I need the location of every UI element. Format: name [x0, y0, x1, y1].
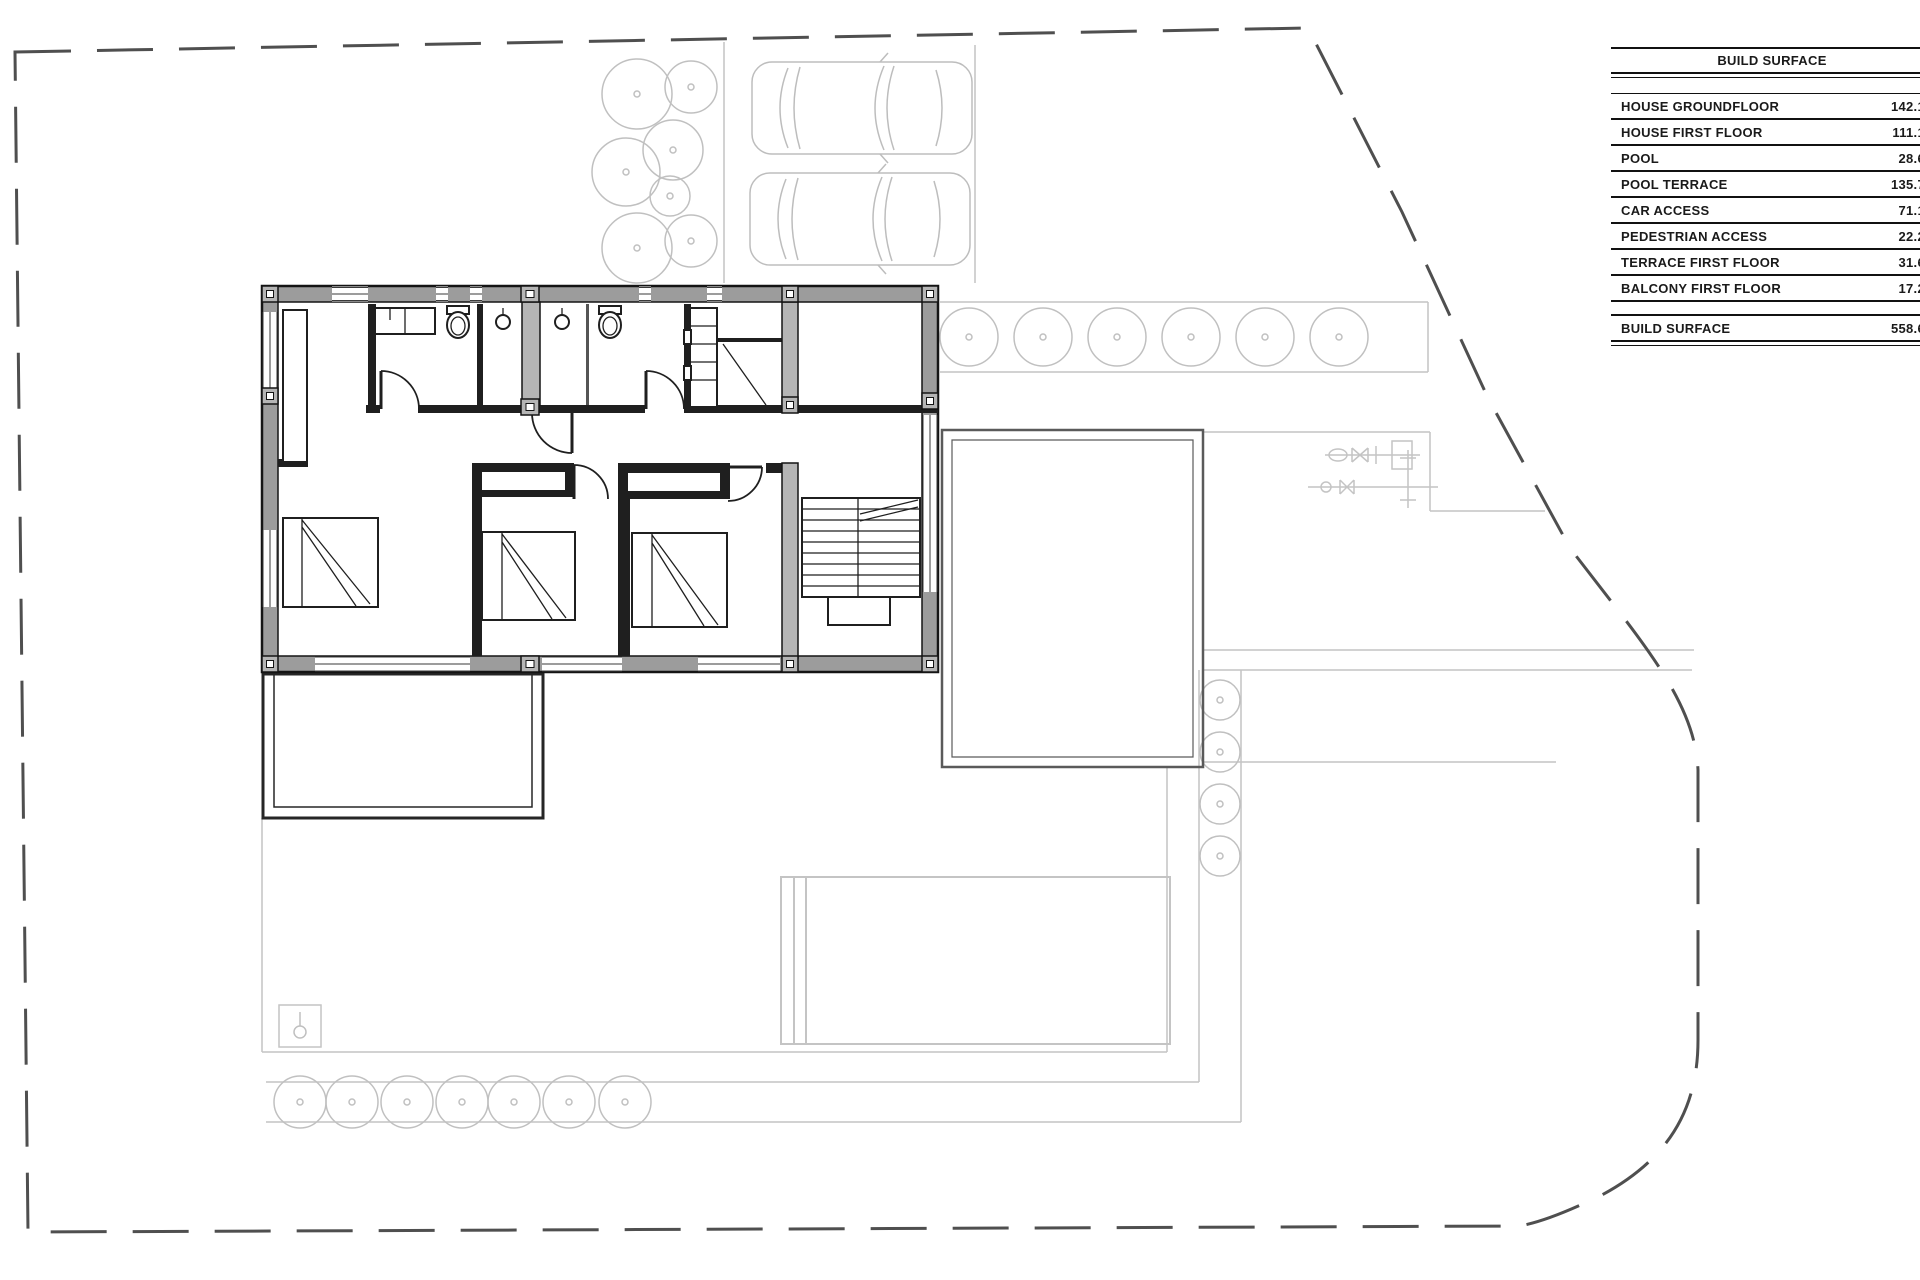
pool-terrace-outline	[262, 767, 1167, 1052]
table-rule	[1611, 345, 1920, 346]
bed	[482, 532, 575, 620]
bed	[283, 518, 378, 607]
table-row: HOUSE GROUNDFLOOR 142.1	[1611, 94, 1920, 120]
car-icon	[750, 164, 970, 274]
tree-band-south-lines	[266, 1082, 1241, 1122]
car-icon	[752, 53, 972, 163]
utility-enclosure-lines	[1203, 432, 1545, 511]
house-floor-plan	[262, 286, 938, 672]
pool-outline	[781, 877, 1170, 1044]
site-plan-sheet: { "table": { "title": "BUILD SURFACE", "…	[0, 0, 1920, 1280]
row-value: 17.2	[1898, 281, 1920, 296]
pool-steps	[794, 877, 806, 1044]
bed	[632, 533, 727, 627]
row-label: PEDESTRIAN ACCESS	[1621, 229, 1767, 244]
table-row: HOUSE FIRST FLOOR 111.1	[1611, 120, 1920, 146]
row-label: BALCONY FIRST FLOOR	[1621, 281, 1781, 296]
table-row: CAR ACCESS 71.1	[1611, 198, 1920, 224]
row-value: 135.7	[1891, 177, 1920, 192]
wardrobe	[283, 310, 307, 462]
deck-east	[942, 430, 1203, 767]
row-value: 71.1	[1898, 203, 1920, 218]
row-value: 28.6	[1898, 151, 1920, 166]
planter-sprout-icon	[294, 1012, 306, 1038]
tree-strip-right	[1200, 680, 1240, 876]
table-row: PEDESTRIAN ACCESS 22.2	[1611, 224, 1920, 250]
table-row: POOL TERRACE 135.7	[1611, 172, 1920, 198]
table-total-row: BUILD SURFACE 558.6	[1611, 314, 1920, 342]
build-surface-table: BUILD SURFACE HOUSE GROUNDFLOOR 142.1 HO…	[1611, 47, 1920, 346]
row-value: 31.6	[1898, 255, 1920, 270]
table-title: BUILD SURFACE	[1611, 49, 1920, 72]
row-label: POOL TERRACE	[1621, 177, 1728, 192]
bedroom2-closet	[481, 471, 566, 491]
bedroom3-closet	[627, 472, 721, 492]
row-value: 111.1	[1892, 125, 1920, 140]
table-row: BALCONY FIRST FLOOR 17.2	[1611, 276, 1920, 302]
row-label: HOUSE FIRST FLOOR	[1621, 125, 1763, 140]
total-value: 558.6	[1891, 321, 1920, 336]
terrain-lines-east	[1203, 650, 1694, 762]
row-value: 142.1	[1891, 99, 1920, 114]
tree-row-south	[274, 1076, 651, 1128]
tree-row-east	[940, 308, 1368, 366]
table-rule	[1611, 72, 1920, 74]
toilet-icon	[447, 306, 469, 338]
parking-cars	[750, 53, 972, 274]
row-label: TERRACE FIRST FLOOR	[1621, 255, 1780, 270]
total-label: BUILD SURFACE	[1621, 321, 1730, 336]
terrace-south-west	[263, 674, 543, 818]
row-label: POOL	[1621, 151, 1659, 166]
row-label: HOUSE GROUNDFLOOR	[1621, 99, 1779, 114]
table-row: TERRACE FIRST FLOOR 31.6	[1611, 250, 1920, 276]
toilet-icon	[599, 306, 621, 338]
tree-cluster	[592, 59, 717, 283]
utility-valves-icon	[1308, 441, 1438, 508]
double-sink-counter-icon	[375, 308, 435, 334]
row-value: 22.2	[1898, 229, 1920, 244]
table-row: POOL 28.6	[1611, 146, 1920, 172]
pool	[781, 877, 1170, 1044]
row-label: CAR ACCESS	[1621, 203, 1709, 218]
